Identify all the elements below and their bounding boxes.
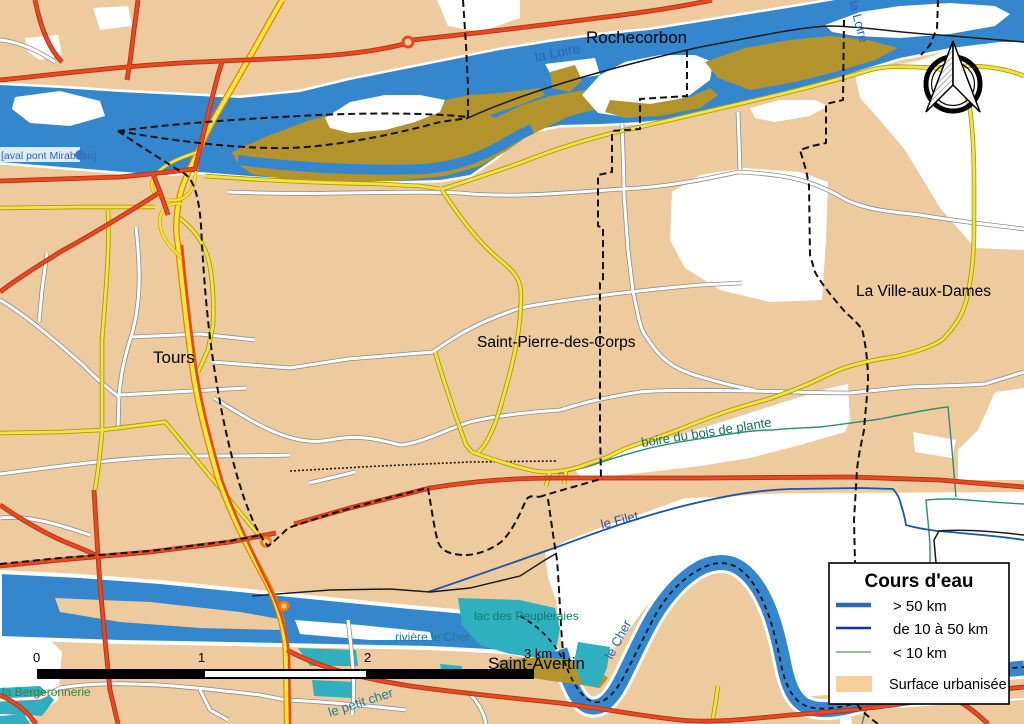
svg-text:< 10 km: < 10 km bbox=[893, 645, 947, 662]
svg-text:de 10 à 50 km: de 10 à 50 km bbox=[893, 621, 988, 638]
svg-text:Surface urbanisée: Surface urbanisée bbox=[889, 677, 1007, 693]
svg-text:Cours d'eau: Cours d'eau bbox=[864, 571, 973, 592]
svg-text:Rochecorbon: Rochecorbon bbox=[586, 28, 687, 47]
svg-text:2: 2 bbox=[364, 650, 371, 665]
svg-text:1: 1 bbox=[198, 650, 205, 665]
svg-text:la Bergeronnerie: la Bergeronnerie bbox=[2, 685, 91, 699]
svg-text:Tours: Tours bbox=[153, 348, 195, 367]
svg-text:La Ville-aux-Dames: La Ville-aux-Dames bbox=[856, 283, 991, 300]
svg-text:> 50 km: > 50 km bbox=[893, 598, 947, 615]
svg-text:rivière le Cher: rivière le Cher bbox=[395, 630, 470, 644]
svg-text:Saint-Pierre-des-Corps: Saint-Pierre-des-Corps bbox=[477, 334, 636, 351]
svg-text:0: 0 bbox=[33, 650, 40, 665]
svg-text:lac des Peupleraies: lac des Peupleraies bbox=[474, 609, 579, 623]
svg-text:3 km: 3 km bbox=[524, 646, 552, 661]
